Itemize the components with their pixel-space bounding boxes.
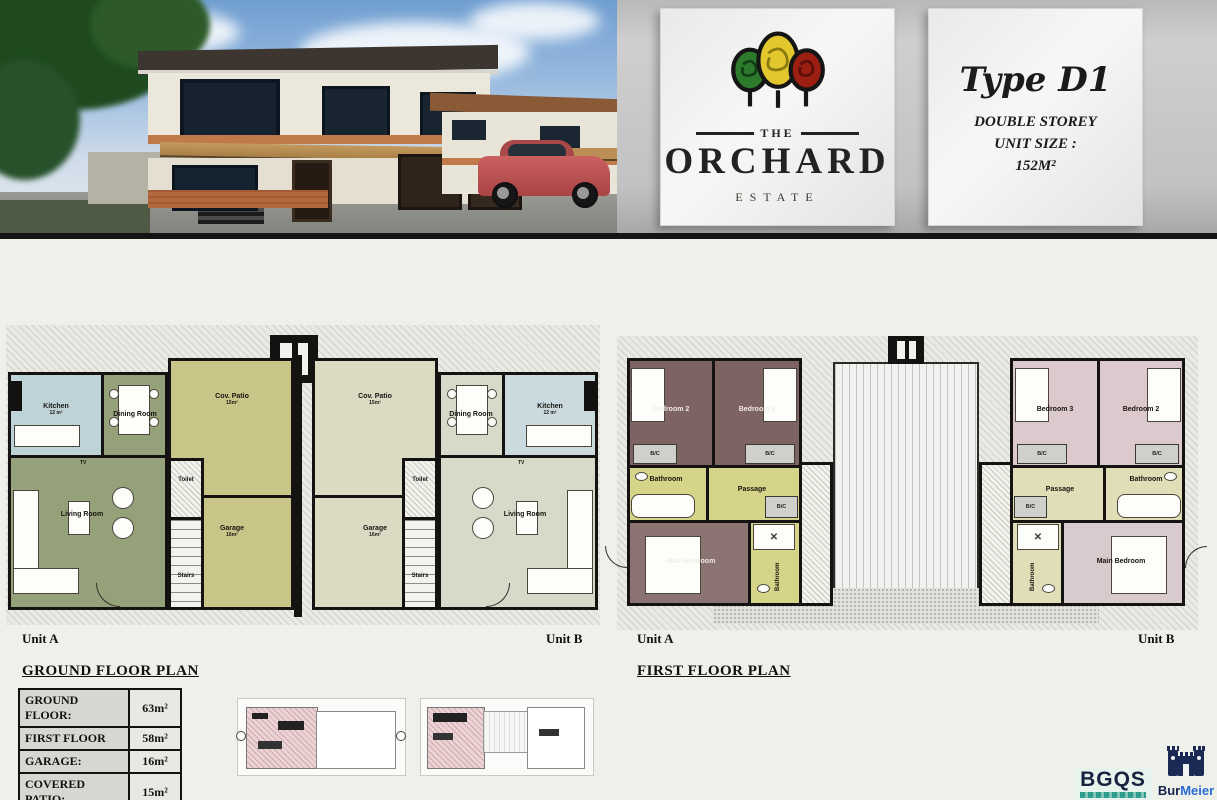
- room-label: Cov. Patio: [358, 393, 392, 400]
- hero-render-photo: [0, 0, 617, 233]
- window: [452, 120, 486, 140]
- column-marker: [396, 731, 406, 741]
- kitchen-counter: [14, 425, 80, 447]
- brick-band: [148, 190, 328, 208]
- key-plan-ground-thumbnail: [237, 698, 406, 776]
- logo-estate-text: ESTATE: [660, 190, 895, 205]
- chair: [109, 389, 119, 399]
- car-hub: [577, 187, 589, 199]
- logo-the-text: THE: [760, 126, 794, 141]
- sofa: [527, 568, 593, 594]
- chair: [487, 389, 497, 399]
- ff-a-ensuite-label: Bathroom: [775, 554, 782, 600]
- gf-b-patio-label: Cov. Patio 15m²: [344, 393, 406, 406]
- chair: [149, 389, 159, 399]
- dining-table: [456, 385, 488, 435]
- type-title: Type D1: [928, 60, 1143, 100]
- logo-rule-right: [801, 132, 859, 135]
- gf-unit-a-caption: Unit A: [22, 631, 58, 647]
- room-area: 16m²: [201, 533, 263, 539]
- room-area: 12 m²: [26, 411, 86, 417]
- room-area: 15m²: [201, 401, 263, 407]
- unit-outline: [316, 711, 396, 769]
- ff-a-passage-label: Passage: [721, 486, 783, 494]
- ff-b-stairs: [979, 462, 1013, 606]
- roof-outline: [483, 711, 529, 753]
- gf-b-stairs: [402, 517, 438, 610]
- row-value: 63m²: [129, 689, 181, 727]
- chimney-flue: [897, 341, 905, 359]
- gf-b-toilet: [402, 458, 438, 520]
- toilet-fixture: [1042, 584, 1055, 593]
- lounge-chair: [472, 517, 494, 539]
- chimney: [888, 336, 924, 364]
- type-panel: Type D1 DOUBLE STOREY UNIT SIZE : 152M²: [928, 8, 1143, 226]
- burmeier-bur: Bur: [1158, 783, 1180, 798]
- room-label: Garage: [363, 525, 387, 532]
- toilet-fixture: [757, 584, 770, 593]
- type-subtitle: DOUBLE STOREY UNIT SIZE : 152M²: [928, 112, 1143, 177]
- area-table: GROUND FLOOR: 63m² FIRST FLOOR 58m² GARA…: [18, 688, 182, 800]
- table-row: COVERED PATIO: 15m²: [19, 773, 181, 800]
- room-label: Garage: [220, 525, 244, 532]
- lounge-chair: [112, 487, 134, 509]
- plan-text-smudge: [433, 713, 467, 722]
- row-value: 58m²: [129, 727, 181, 750]
- chimney-flue: [909, 341, 916, 359]
- ff-a-bathroom-label: Bathroom: [635, 476, 697, 484]
- gf-a-stairs-label: Stairs: [169, 573, 203, 580]
- room-label: Kitchen: [537, 403, 563, 410]
- ff-unit-b-caption: Unit B: [1138, 631, 1174, 647]
- gf-b-stairs-label: Stairs: [403, 573, 437, 580]
- type-line1: DOUBLE STOREY: [928, 112, 1143, 134]
- table-row: GARAGE: 16m²: [19, 750, 181, 773]
- brochure-page: THE ORCHARD ESTATE Type D1 DOUBLE STOREY…: [0, 0, 1217, 800]
- gf-a-toilet-label: Toilet: [169, 477, 203, 484]
- sofa: [13, 568, 79, 594]
- ff-b-bc-closet: B/C: [1014, 496, 1047, 518]
- bed: [1147, 368, 1181, 422]
- car-hub: [497, 187, 509, 199]
- ff-a-bc-closet: B/C: [745, 444, 795, 464]
- party-wall: [294, 355, 302, 617]
- room-area: 12 m²: [520, 411, 580, 417]
- row-value: 15m²: [129, 773, 181, 800]
- grass: [0, 200, 150, 233]
- row-value: 16m²: [129, 750, 181, 773]
- row-label: COVERED PATIO:: [19, 773, 129, 800]
- balcony-door-arc: [1185, 546, 1207, 568]
- gf-b-living-label: Living Room: [494, 511, 556, 519]
- sofa: [567, 490, 593, 570]
- chair: [447, 389, 457, 399]
- gf-a-dining-label: Dining Room: [104, 411, 166, 419]
- orchard-trees-icon: [722, 22, 834, 118]
- unit-outline: [527, 707, 585, 769]
- bed: [763, 368, 797, 422]
- sofa: [13, 490, 39, 570]
- gf-a-living-label: Living Room: [51, 511, 113, 519]
- ff-b-passage-label: Passage: [1029, 486, 1091, 494]
- center-roof: [833, 362, 979, 590]
- gf-b-dining-label: Dining Room: [440, 411, 502, 419]
- room-area: 16m²: [344, 533, 406, 539]
- row-label: FIRST FLOOR: [19, 727, 129, 750]
- gf-b-kitchen-label: Kitchen 12 m²: [520, 403, 580, 416]
- room-area: 15m²: [344, 401, 406, 407]
- balcony-door-arc: [605, 546, 627, 568]
- plan-text-smudge: [278, 721, 304, 730]
- cloud: [470, 2, 600, 40]
- window: [322, 86, 390, 142]
- column-marker: [236, 731, 246, 741]
- ff-a-bc-closet: B/C: [633, 444, 677, 464]
- bed: [631, 368, 665, 422]
- ff-a-bedroom3-label: Bedroom 3: [725, 406, 789, 414]
- bgqs-tagline-smudge: [1080, 792, 1146, 798]
- ff-b-bedroom2-label: Bedroom 2: [1109, 406, 1173, 414]
- bathtub: [1117, 494, 1181, 518]
- bathtub: [631, 494, 695, 518]
- plan-text-smudge: [539, 729, 559, 736]
- burmeier-text: BurMeier: [1156, 783, 1216, 798]
- ff-unit-a-caption: Unit A: [637, 631, 673, 647]
- gf-unit-b-caption: Unit B: [546, 631, 582, 647]
- ground-floor-plan-title: GROUND FLOOR PLAN: [22, 663, 199, 680]
- ff-a-bc-closet: B/C: [765, 496, 798, 518]
- type-line2: UNIT SIZE :: [928, 134, 1143, 156]
- orchard-logo-panel: THE ORCHARD ESTATE: [660, 8, 895, 226]
- burmeier-logo: BurMeier: [1156, 742, 1216, 800]
- key-plan-first-thumbnail: [420, 698, 594, 776]
- ground-floor-plan: Kitchen 12 m² Dining Room TV Living Room…: [6, 325, 600, 625]
- shower: ✕: [753, 524, 795, 550]
- ff-a-main-bedroom-label: Main Bedroom: [655, 558, 727, 566]
- lounge-chair: [472, 487, 494, 509]
- ff-a-bedroom2-label: Bedroom 2: [639, 406, 703, 414]
- shower: ✕: [1017, 524, 1059, 550]
- row-label: GROUND FLOOR:: [19, 689, 129, 727]
- logo-rule-left: [696, 132, 754, 135]
- first-floor-plan: B/C B/C B/C ✕ Bedroom 2 Bedroom 3 Bathro…: [617, 336, 1198, 630]
- bed: [1015, 368, 1049, 422]
- gf-a-toilet: [168, 458, 204, 520]
- room-label: Cov. Patio: [215, 393, 249, 400]
- ff-b-ensuite-label: Bathroom: [1030, 554, 1037, 600]
- ff-b-main-bedroom-label: Main Bedroom: [1085, 558, 1157, 566]
- plan-text-smudge: [258, 741, 282, 749]
- plan-text-smudge: [252, 713, 268, 719]
- type-line3: 152M²: [928, 156, 1143, 178]
- gf-a-tv-label: TV: [80, 460, 86, 466]
- castle-icon: [1166, 742, 1206, 778]
- stove: [584, 381, 595, 411]
- gf-b-toilet-label: Toilet: [403, 477, 437, 484]
- logo-the-row: THE: [660, 126, 895, 141]
- gf-b-tv-label: TV: [518, 460, 524, 466]
- ff-b-bedroom3-label: Bedroom 3: [1023, 406, 1087, 414]
- burmeier-meier: Meier: [1180, 783, 1214, 798]
- stove: [11, 381, 22, 411]
- gf-a-patio-label: Cov. Patio 15m²: [201, 393, 263, 406]
- first-floor-plan-title: FIRST FLOOR PLAN: [637, 663, 791, 680]
- table-row: GROUND FLOOR: 63m²: [19, 689, 181, 727]
- ff-b-bc-closet: B/C: [1135, 444, 1179, 464]
- logo-orchard-text: ORCHARD: [660, 140, 895, 183]
- ff-b-bathroom-label: Bathroom: [1115, 476, 1177, 484]
- room-label: Kitchen: [43, 403, 69, 410]
- gf-b-garage-label: Garage 16m²: [344, 525, 406, 538]
- bgqs-logo: BGQS: [1074, 768, 1152, 800]
- lounge-chair: [112, 517, 134, 539]
- divider-rule: [0, 233, 1217, 239]
- ff-a-stairs: [799, 462, 833, 606]
- dining-table: [118, 385, 150, 435]
- gf-a-kitchen-label: Kitchen 12 m²: [26, 403, 86, 416]
- gf-a-stairs: [168, 517, 204, 610]
- row-label: GARAGE:: [19, 750, 129, 773]
- bgqs-text: BGQS: [1074, 768, 1152, 792]
- gf-a-garage-label: Garage 16m²: [201, 525, 263, 538]
- table-row: FIRST FLOOR 58m²: [19, 727, 181, 750]
- plan-text-smudge: [433, 733, 453, 740]
- kitchen-counter: [526, 425, 592, 447]
- ff-b-bc-closet: B/C: [1017, 444, 1067, 464]
